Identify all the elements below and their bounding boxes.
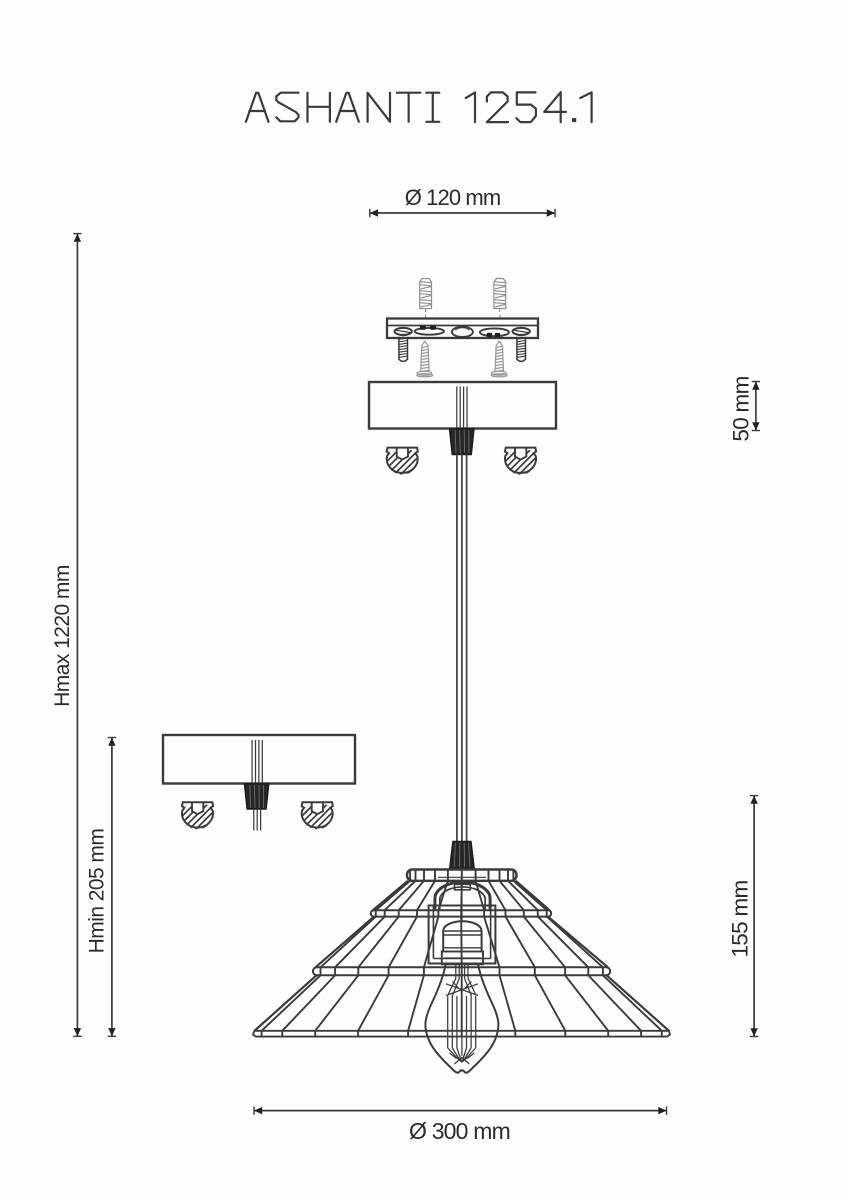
svg-text:Ø 120 mm: Ø 120 mm (405, 185, 501, 210)
svg-text:Hmax 1220 mm: Hmax 1220 mm (51, 565, 74, 707)
svg-text:Hmin 205 mm: Hmin 205 mm (86, 829, 109, 954)
svg-text:50 mm: 50 mm (729, 376, 754, 441)
svg-text:Ø 300 mm: Ø 300 mm (409, 1118, 510, 1144)
svg-text:155 mm: 155 mm (728, 880, 753, 957)
